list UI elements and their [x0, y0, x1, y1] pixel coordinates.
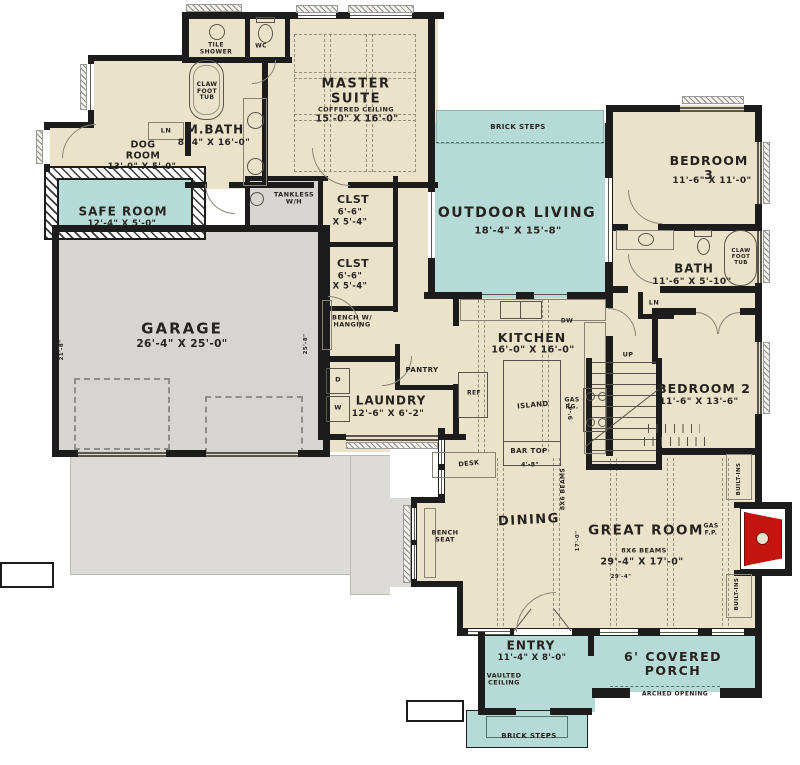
bedroom-3-dims: 11'-6" X 11'-0" [672, 176, 751, 186]
wall [262, 182, 314, 188]
fireplace-circle [756, 532, 769, 545]
wall [588, 632, 594, 656]
wall [755, 568, 762, 634]
great-room-note: 8X6 BEAMS [621, 547, 667, 554]
wall [318, 242, 398, 247]
porch-label: 6' COVERED PORCH [610, 650, 737, 678]
kitchen-sink-divider [520, 301, 521, 319]
beams-dining-label: 8X6 BEAMS [561, 468, 568, 510]
dishwasher-label: DW [561, 319, 573, 326]
wall [606, 105, 680, 112]
window-line [760, 230, 762, 283]
window-line [468, 631, 510, 632]
closet-1-dims: 6'-6" X 5'-4" [333, 208, 368, 227]
wall [298, 450, 330, 457]
window-sill [763, 342, 770, 414]
wall [592, 688, 630, 698]
ref-label: REF [467, 391, 481, 398]
gas-fireplace-label: GAS F.P. [703, 523, 718, 536]
great-room-dims: 29'-4" X 17'-0" [600, 558, 683, 569]
wall [318, 434, 346, 440]
built-ins-1-label: BUILT-INS [736, 463, 742, 496]
wc-label: WC [255, 44, 267, 51]
island-depth-dim: 9'-4" [569, 402, 576, 420]
porch-opening-line [712, 632, 744, 633]
bar-top-label: BAR TOP [510, 448, 547, 456]
dog-room-label: DOG ROOM [126, 140, 161, 161]
bar-top-line [503, 441, 561, 442]
bath-label: BATH [674, 262, 714, 275]
window-sill [763, 142, 770, 204]
closet-2-label: CLST [337, 258, 369, 270]
stair-ticks [644, 437, 706, 446]
great-beam-1 [497, 458, 504, 626]
window-line [757, 142, 759, 204]
brick-steps-top-label: BRICK STEPS [490, 124, 546, 132]
washer-label: W [334, 404, 342, 411]
toilet-tank [694, 230, 712, 237]
brick-steps-bottom-label: BRICK STEPS [501, 733, 557, 741]
window-sill [36, 130, 43, 164]
window-sill [403, 505, 411, 583]
mbath-dims: 8'-4" X 16'-0" [178, 138, 250, 148]
bedroom-2-label: BEDROOM 2 [657, 382, 751, 396]
wall [612, 286, 628, 293]
wall [52, 450, 78, 457]
wall [185, 182, 207, 188]
window-line [414, 508, 415, 540]
safe-room-label: SAFE ROOM [78, 205, 167, 218]
door-line [482, 294, 516, 295]
garage-door-line [78, 452, 166, 454]
wall [652, 308, 696, 315]
wall [740, 308, 762, 315]
window-line [431, 192, 432, 258]
wall [606, 292, 613, 308]
entry-label: ENTRY [507, 639, 556, 652]
dryer-label: D [335, 376, 341, 383]
outdoor-living-label: OUTDOOR LIVING [438, 206, 596, 222]
window-line [680, 107, 744, 109]
window-sill [763, 230, 770, 283]
wall [411, 581, 463, 587]
master-suite-dims: 15'-0" X 16'-0" [315, 115, 398, 126]
built-ins-2-label: BUILT-INS [734, 578, 740, 611]
window-line [90, 64, 91, 110]
window-sill [80, 64, 87, 110]
bench-hanging-label: BENCH W/ HANGING [332, 315, 372, 330]
staircase [592, 362, 656, 464]
window-line [680, 110, 744, 112]
wall [755, 105, 762, 142]
tankless-label: TANKLESS W/H [274, 192, 314, 207]
kitchen-dims: 16'-0" X 16'-0" [491, 346, 574, 357]
wall [478, 708, 516, 715]
garage-side-dim-right: 25'-8" [303, 334, 309, 355]
master-suite-note: COFFERED CEILING [318, 106, 394, 113]
bath-dims: 11'-6" X 5'-10" [652, 277, 731, 287]
window-line [760, 342, 762, 414]
toilet-tank-wc [256, 17, 275, 23]
mbath-label: M.BATH [186, 123, 244, 136]
wall [586, 464, 662, 470]
window-sill [348, 5, 414, 13]
window-gap [44, 130, 50, 164]
water-heater [250, 192, 264, 206]
entry-note: VAULTED CEILING [487, 673, 522, 688]
window-sill [346, 442, 438, 449]
bedroom-2-dims: 11'-6" X 13'-6" [659, 397, 738, 407]
window-line [757, 230, 759, 283]
closet-2-dims: 6'-6" X 5'-4" [333, 272, 368, 291]
great-beam-3 [610, 458, 617, 626]
wall [285, 12, 290, 62]
entry-dims: 11'-4" X 8'-0" [498, 654, 567, 664]
window-line [346, 439, 438, 441]
window-line [346, 435, 438, 437]
window-line [757, 342, 759, 414]
bottom-stoop [406, 700, 464, 722]
door-line [533, 294, 567, 295]
left-stoop [0, 562, 54, 588]
porch-opening-line [660, 632, 698, 633]
garage-door-line [78, 455, 166, 457]
great-room-depth-dim: 17'-0" [575, 531, 581, 552]
laundry-label: LAUNDRY [356, 394, 427, 407]
safe-room-dims: 12'-4" X 5'-0" [88, 220, 157, 230]
wall [478, 632, 485, 714]
wall [417, 497, 445, 503]
driveway-apron [70, 455, 390, 575]
wall [166, 450, 206, 457]
wall [755, 448, 762, 506]
clawfoot-tub-master-label: CLAW FOOT TUB [197, 82, 218, 102]
wall [660, 286, 762, 293]
window-line [608, 178, 609, 262]
window-line [414, 545, 415, 579]
toilet-bowl-wc [258, 24, 273, 43]
window-sill [186, 4, 242, 12]
garage-side-dim-left: 21'-8" [59, 340, 65, 361]
garage-door-track-1 [74, 378, 170, 450]
vanity-sink [247, 112, 264, 129]
stair-ticks [648, 424, 700, 433]
wall [550, 708, 592, 715]
great-beam-4 [667, 458, 674, 626]
garage-label: GARAGE [141, 321, 223, 338]
exterior-patch-2 [390, 587, 457, 636]
window-line [760, 142, 762, 204]
great-room-width-dim: 29'-4" [611, 574, 632, 580]
shower-head [209, 24, 225, 40]
door-arc [205, 184, 235, 214]
master-suite-label: MASTER SUITE [321, 77, 390, 106]
linen-2-label: LN [649, 299, 659, 306]
window-sill [682, 96, 744, 104]
wall [395, 385, 458, 390]
porch-opening-line [600, 632, 638, 633]
arched-opening-label: ARCHED OPENING [642, 692, 708, 699]
up-label: UP [623, 351, 634, 358]
window-sill [296, 5, 338, 13]
garage-door-line [206, 455, 298, 457]
toilet-bowl [697, 238, 710, 255]
window-line [298, 15, 336, 16]
pantry-label: PANTRY [405, 367, 438, 375]
garage-door-line [206, 452, 298, 454]
wall [245, 12, 250, 62]
clawfoot-tub-bath-label: CLAW FOOT TUB [731, 248, 750, 266]
outdoor-living-dims: 18'-4" X 15'-8" [474, 225, 561, 236]
window-line [468, 634, 510, 635]
wall [453, 298, 459, 326]
window-line [350, 15, 412, 16]
bench-seat-label: BENCH SEAT [431, 530, 458, 545]
wall [720, 688, 762, 698]
great-room-label: GREAT ROOM [588, 523, 704, 538]
wall [318, 356, 324, 440]
arched-opening-dash [610, 686, 720, 687]
linen-1-label: LN [161, 127, 171, 134]
tile-shower-label: TILE SHOWER [200, 42, 232, 55]
kitchen-sink [500, 301, 542, 319]
wall [88, 55, 188, 61]
island-width-dim: 4'-8" [521, 463, 539, 470]
dog-room-dims: 13'-0" X 5'-0" [108, 163, 177, 173]
kitchen-label: KITCHEN [498, 331, 567, 345]
garage-dims: 26'-4" X 25'-0" [136, 339, 227, 351]
wall [652, 314, 658, 364]
laundry-dims: 12'-6" X 6'-2" [352, 409, 424, 419]
bath-sink [638, 233, 654, 246]
outdoor-steps-dash [436, 142, 604, 143]
garage-door-track-2 [205, 396, 303, 454]
fireplace-wall [786, 502, 792, 576]
closet-1-label: CLST [337, 194, 369, 206]
floor-plan: TILE SHOWER WC CLAW FOOT TUB MASTER SUIT… [0, 0, 800, 765]
wall [516, 292, 534, 299]
vanity-sink [247, 158, 264, 175]
